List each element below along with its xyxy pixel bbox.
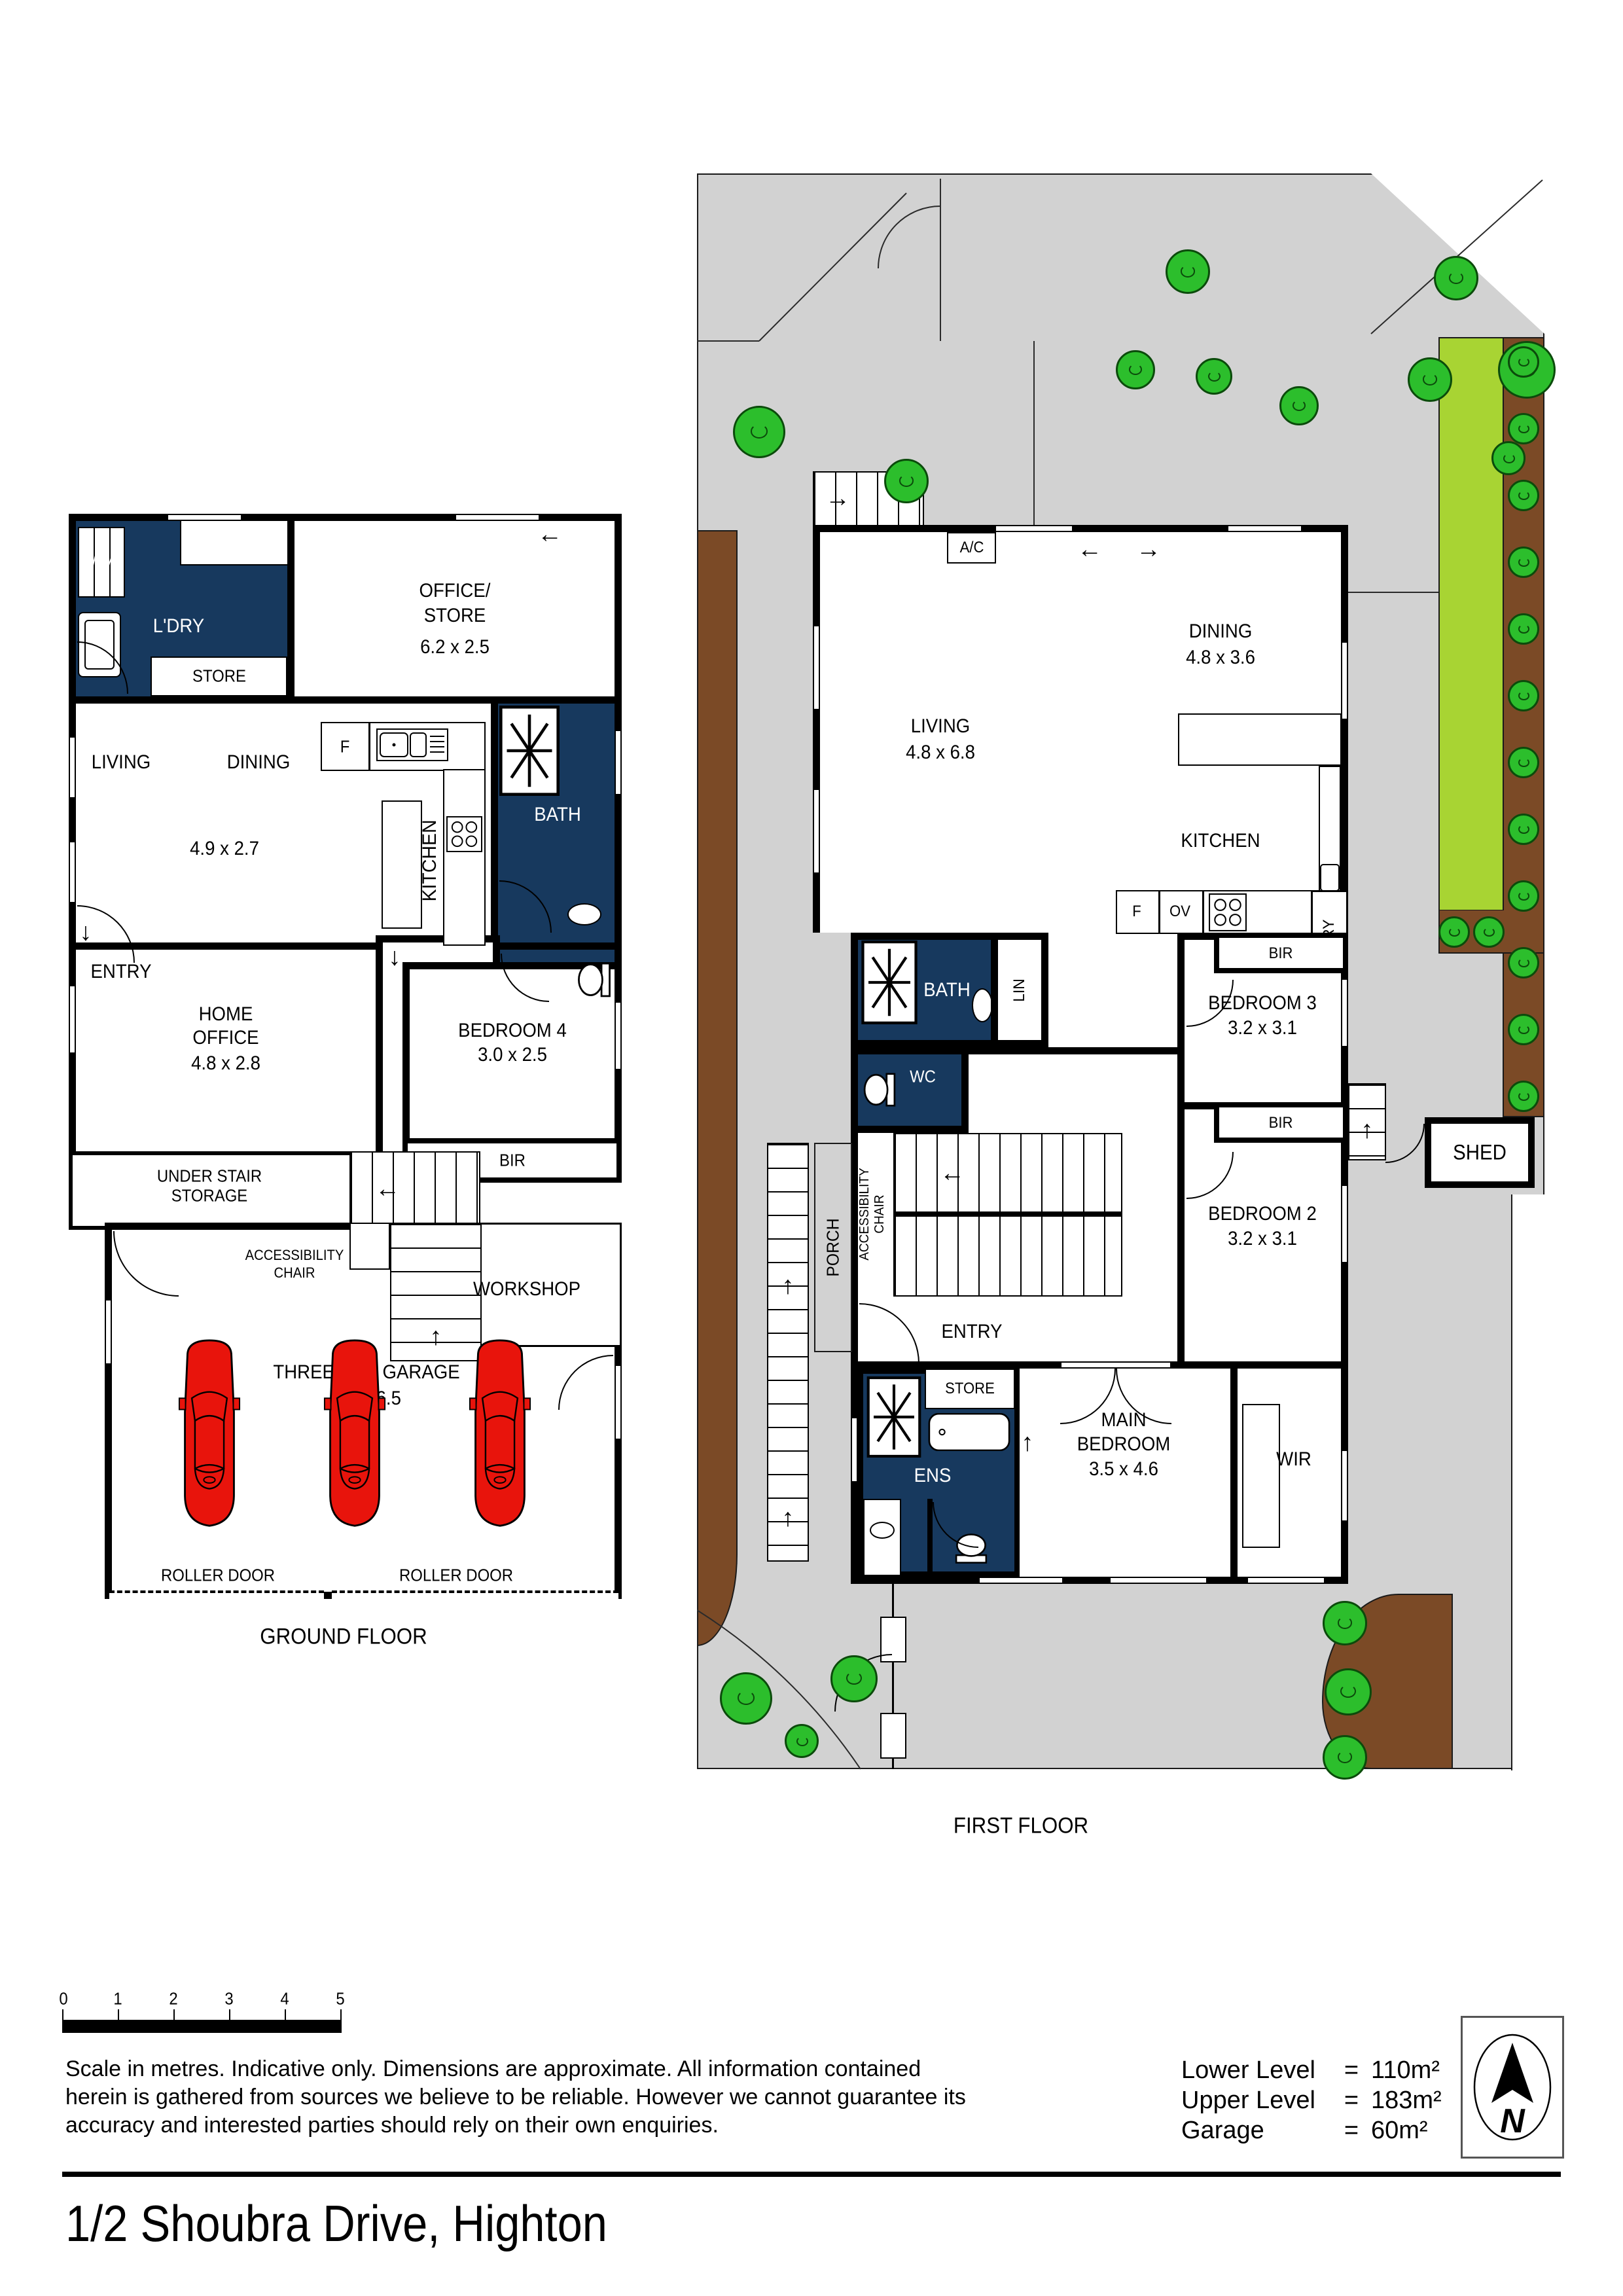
home-office-dims: 4.8 x 2.8 [191,1052,260,1075]
under-stair-label-2: STORAGE [171,1186,248,1206]
first-floor-title: FIRST FLOOR [954,1814,1088,1839]
tree-icon [1323,1601,1367,1645]
first-floor-plan: → A/C ← → DINING 4.8 x 3.6 LIVING 4.8 x … [697,173,1548,1849]
bath-vanity-gf [567,903,601,925]
area-label: Lower Level [1181,2055,1332,2085]
wir-label: WIR [1276,1448,1311,1471]
car-icon [325,1340,385,1526]
stove-icon-gf [446,816,482,852]
main-bedroom-dims: 3.5 x 4.6 [1089,1458,1158,1480]
bath-label-gf: BATH [534,804,581,826]
accessibility-label-ff: ACCESSIBILITY CHAIR [857,1168,887,1260]
tree-icon [1116,350,1155,389]
area-value: 60m² [1371,2115,1428,2145]
kitchen-island [1178,713,1342,766]
dining-label-ff: DINING [1189,620,1253,643]
home-office-label-2: OFFICE [192,1027,259,1049]
accessibility-line2: CHAIR [872,1194,887,1233]
home-office-label-1: HOME [199,1003,253,1026]
window [995,525,1073,532]
kitchen-sink-icon [376,728,448,761]
window [1341,1450,1348,1522]
office-entry-arrow-icon: ← [537,521,562,549]
front-steps-arrow-1-icon: ↑ [782,1272,794,1300]
deck-arrow-icon: → [825,485,850,513]
window [1341,641,1348,720]
shrub-icon [1508,747,1539,778]
area-value: 110m² [1371,2055,1440,2085]
main-bedroom-label-2: BEDROOM [1077,1433,1171,1456]
scale-tick-5: 5 [336,1989,344,2009]
window [167,514,242,521]
scale-ticks-lines [62,2009,342,2020]
scale-tick-3: 3 [224,1989,233,2009]
side-steps-arrow-icon: ↑ [1361,1117,1374,1145]
scale-tick-0: 0 [59,1989,67,2009]
ground-floor-title: GROUND FLOOR [260,1624,427,1650]
stove-icon-ff [1209,893,1247,931]
slider-arrow-left-icon: ← [1077,536,1102,564]
scale-bar: 0 1 2 3 4 5 [62,1990,350,2042]
dining-dims-ff: 4.8 x 3.6 [1186,647,1255,669]
entry-arrow-gf-icon: ↓ [80,919,92,947]
disclaimer: Scale in metres. Indicative only. Dimens… [65,2055,982,2140]
kitchen-bench-divider [368,723,370,770]
ens-store-label: STORE [945,1380,995,1398]
office-store-dims: 6.2 x 2.5 [420,636,490,658]
slider-arrow-right-icon: → [1136,536,1161,564]
shrub-icon [1508,1014,1539,1045]
window [105,1299,112,1365]
shrub-icon [1438,916,1470,948]
area-label: Upper Level [1181,2085,1332,2115]
accessibility-chair-box-gf [349,1223,390,1270]
entry-label-ff: ENTRY [941,1321,1002,1343]
tree-icon [733,406,785,458]
bench-divider [1158,891,1160,933]
gate-post [880,1713,906,1759]
tree-icon [1408,357,1452,402]
ens-entry-arrow-icon: ↑ [1022,1429,1034,1458]
area-value: 183m² [1371,2085,1442,2115]
scale-tick-1: 1 [113,1989,122,2009]
living-dims-ff: 4.8 x 6.8 [906,742,975,764]
stairs-arrow-gf-icon: ← [375,1175,400,1204]
stairs-upper-flight-gf [349,1151,480,1230]
window [615,730,622,795]
scale-bar-fill [62,2020,342,2033]
tree-icon [1434,256,1478,300]
laundry-store-label: STORE [192,666,246,687]
window [1109,1577,1207,1584]
shed-label: SHED [1453,1141,1507,1165]
window [1341,1185,1348,1263]
front-steps [767,1143,809,1562]
tree-icon [720,1672,772,1725]
shrub-icon [1508,814,1539,845]
car-icon [179,1340,240,1526]
scale-tick-2: 2 [169,1989,177,2009]
window [1247,1577,1325,1584]
area-summary: Lower Level = 110m² Upper Level = 183m² … [1181,2055,1456,2145]
accessibility-label-2-gf: CHAIR [274,1265,315,1282]
dining-table-gf [382,800,422,929]
accessibility-line1: ACCESSIBILITY [857,1168,872,1260]
wir-wall [1230,1369,1238,1577]
oven-label: OV [1169,903,1190,921]
ens-basin [870,1522,895,1539]
bedroom3-dims: 3.2 x 3.1 [1228,1017,1297,1039]
roller-door-left-label: ROLLER DOOR [161,1566,275,1586]
laundry-bench [180,521,287,565]
tree-icon [1323,1735,1367,1780]
recess-patch [813,933,851,1122]
kitchen-label-ff: KITCHEN [1181,830,1260,852]
living-label-ff: LIVING [911,715,971,738]
shrub-icon [1508,680,1539,711]
garage-cars [178,1335,531,1533]
shrub-icon [1508,346,1539,378]
tree-icon [1196,358,1232,395]
stairs-arrow-ff-icon: ← [940,1160,965,1188]
bedroom4-label: BEDROOM 4 [458,1020,567,1042]
equals-sign: = [1332,2115,1371,2145]
disclaimer-line-2: herein is gathered from sources we belie… [65,2083,982,2111]
ac-label: A/C [960,539,984,557]
window [69,985,76,1054]
window [69,841,76,903]
bedroom4-door-arrow-icon: ↓ [389,944,401,972]
sink-bowl-1 [1320,864,1340,891]
shrub-icon [1473,916,1505,948]
toilet-icon-ff2 [862,1067,897,1113]
shower-icon-ens [866,1376,922,1458]
area-row-garage: Garage = 60m² [1181,2115,1456,2145]
roller-door-right-label: ROLLER DOOR [399,1566,513,1586]
area-row-lower: Lower Level = 110m² [1181,2055,1456,2085]
bedroom4-dims: 3.0 x 2.5 [478,1044,547,1066]
bedroom2-dims: 3.2 x 3.1 [1228,1228,1297,1250]
ens-label: ENS [914,1465,952,1487]
main-bedroom-double-door-gap [1060,1361,1171,1369]
shower-icon-gf [499,705,560,797]
window [978,1577,1063,1584]
window [1227,525,1302,532]
stairs-divider [893,1211,1122,1217]
wir-shelving [1242,1404,1280,1548]
window [813,625,820,710]
bath-label-ff: BATH [923,979,971,1001]
kitchen-bench-vertical [443,769,486,946]
office-store-label-2: STORE [424,605,486,627]
shrub-icon [1508,1081,1539,1112]
kitchen-label-gf: KITCHEN [419,819,441,901]
window [1341,978,1348,1047]
roller-door-right-opening [332,1590,618,1600]
shrub-icon [1508,547,1539,578]
fridge-label-gf: F [340,737,350,757]
shrub-icon [1508,480,1539,511]
bir-top-label: BIR [1269,944,1293,963]
floorplan-document: { "ground_floor": { "floor_label": "GROU… [0,0,1623,2296]
footer-divider [62,2172,1561,2177]
disclaimer-line-1: Scale in metres. Indicative only. Dimens… [65,2055,982,2083]
window [813,789,820,874]
office-store-label-1: OFFICE/ [419,580,491,602]
window [851,1417,858,1482]
bedroom2-label: BEDROOM 2 [1208,1203,1317,1225]
tree-icon [884,459,929,503]
area-label: Garage [1181,2115,1332,2145]
accessibility-label-1-gf: ACCESSIBILITY [245,1247,344,1264]
tree-icon [830,1655,878,1702]
wc-label-ff2: WC [910,1067,936,1087]
bath-basin-ff [972,988,993,1022]
toilet-icon-gf [576,956,613,1003]
ground-floor-plan: WM L'DRY STORE OFFICE/ STORE 6.2 x 2.5 ←… [69,514,622,1692]
shrub-icon [1508,413,1539,444]
window [455,514,540,521]
shower-icon-ff [861,941,918,1024]
laundry-label: L'DRY [153,615,204,637]
north-compass: N [1461,2016,1564,2159]
porch-label: PORCH [823,1218,844,1276]
tree-icon [1325,1668,1372,1715]
tree-icon [1166,249,1210,294]
shrub-icon [1508,947,1539,978]
window [69,736,76,798]
under-stair-label-1: UNDER STAIR [157,1166,262,1187]
living-label-gf: LIVING [92,751,151,774]
scale-tick-4: 4 [280,1989,289,2009]
roller-door-left-opening [109,1590,324,1600]
living-dining-dims-gf: 4.9 x 2.7 [190,838,259,860]
workshop-label: WORKSHOP [473,1278,580,1300]
disclaimer-line-3: accuracy and interested parties should r… [65,2111,982,2140]
tree-icon [785,1724,819,1758]
ens-wc-wall [927,1499,933,1577]
shrub-icon [1508,613,1539,645]
car-icon [470,1340,530,1526]
equals-sign: = [1332,2055,1371,2085]
bench-divider [1202,891,1204,933]
shrub-icon [1508,880,1539,912]
linen-label: LIN [1010,978,1029,1001]
bir-bottom-label: BIR [1269,1114,1293,1132]
north-letter: N [1500,2102,1525,2140]
address-title: 1/2 Shoubra Drive, Highton [65,2194,607,2253]
tree-icon [1491,441,1525,475]
window [615,1001,622,1070]
wm-label: WM [88,553,114,571]
equals-sign: = [1332,2085,1371,2115]
north-arrow-icon: N [1463,2018,1562,2157]
dining-label-gf: DINING [227,751,291,774]
fridge-label-ff: F [1132,903,1141,921]
window [615,1365,622,1440]
tub-icon-ens [926,1413,1012,1451]
tree-icon [1279,386,1319,425]
bedroom4-bir-label: BIR [499,1151,526,1171]
front-steps-arrow-2-icon: ↑ [782,1505,794,1533]
entry-label-gf: ENTRY [90,961,151,983]
area-row-upper: Upper Level = 183m² [1181,2085,1456,2115]
